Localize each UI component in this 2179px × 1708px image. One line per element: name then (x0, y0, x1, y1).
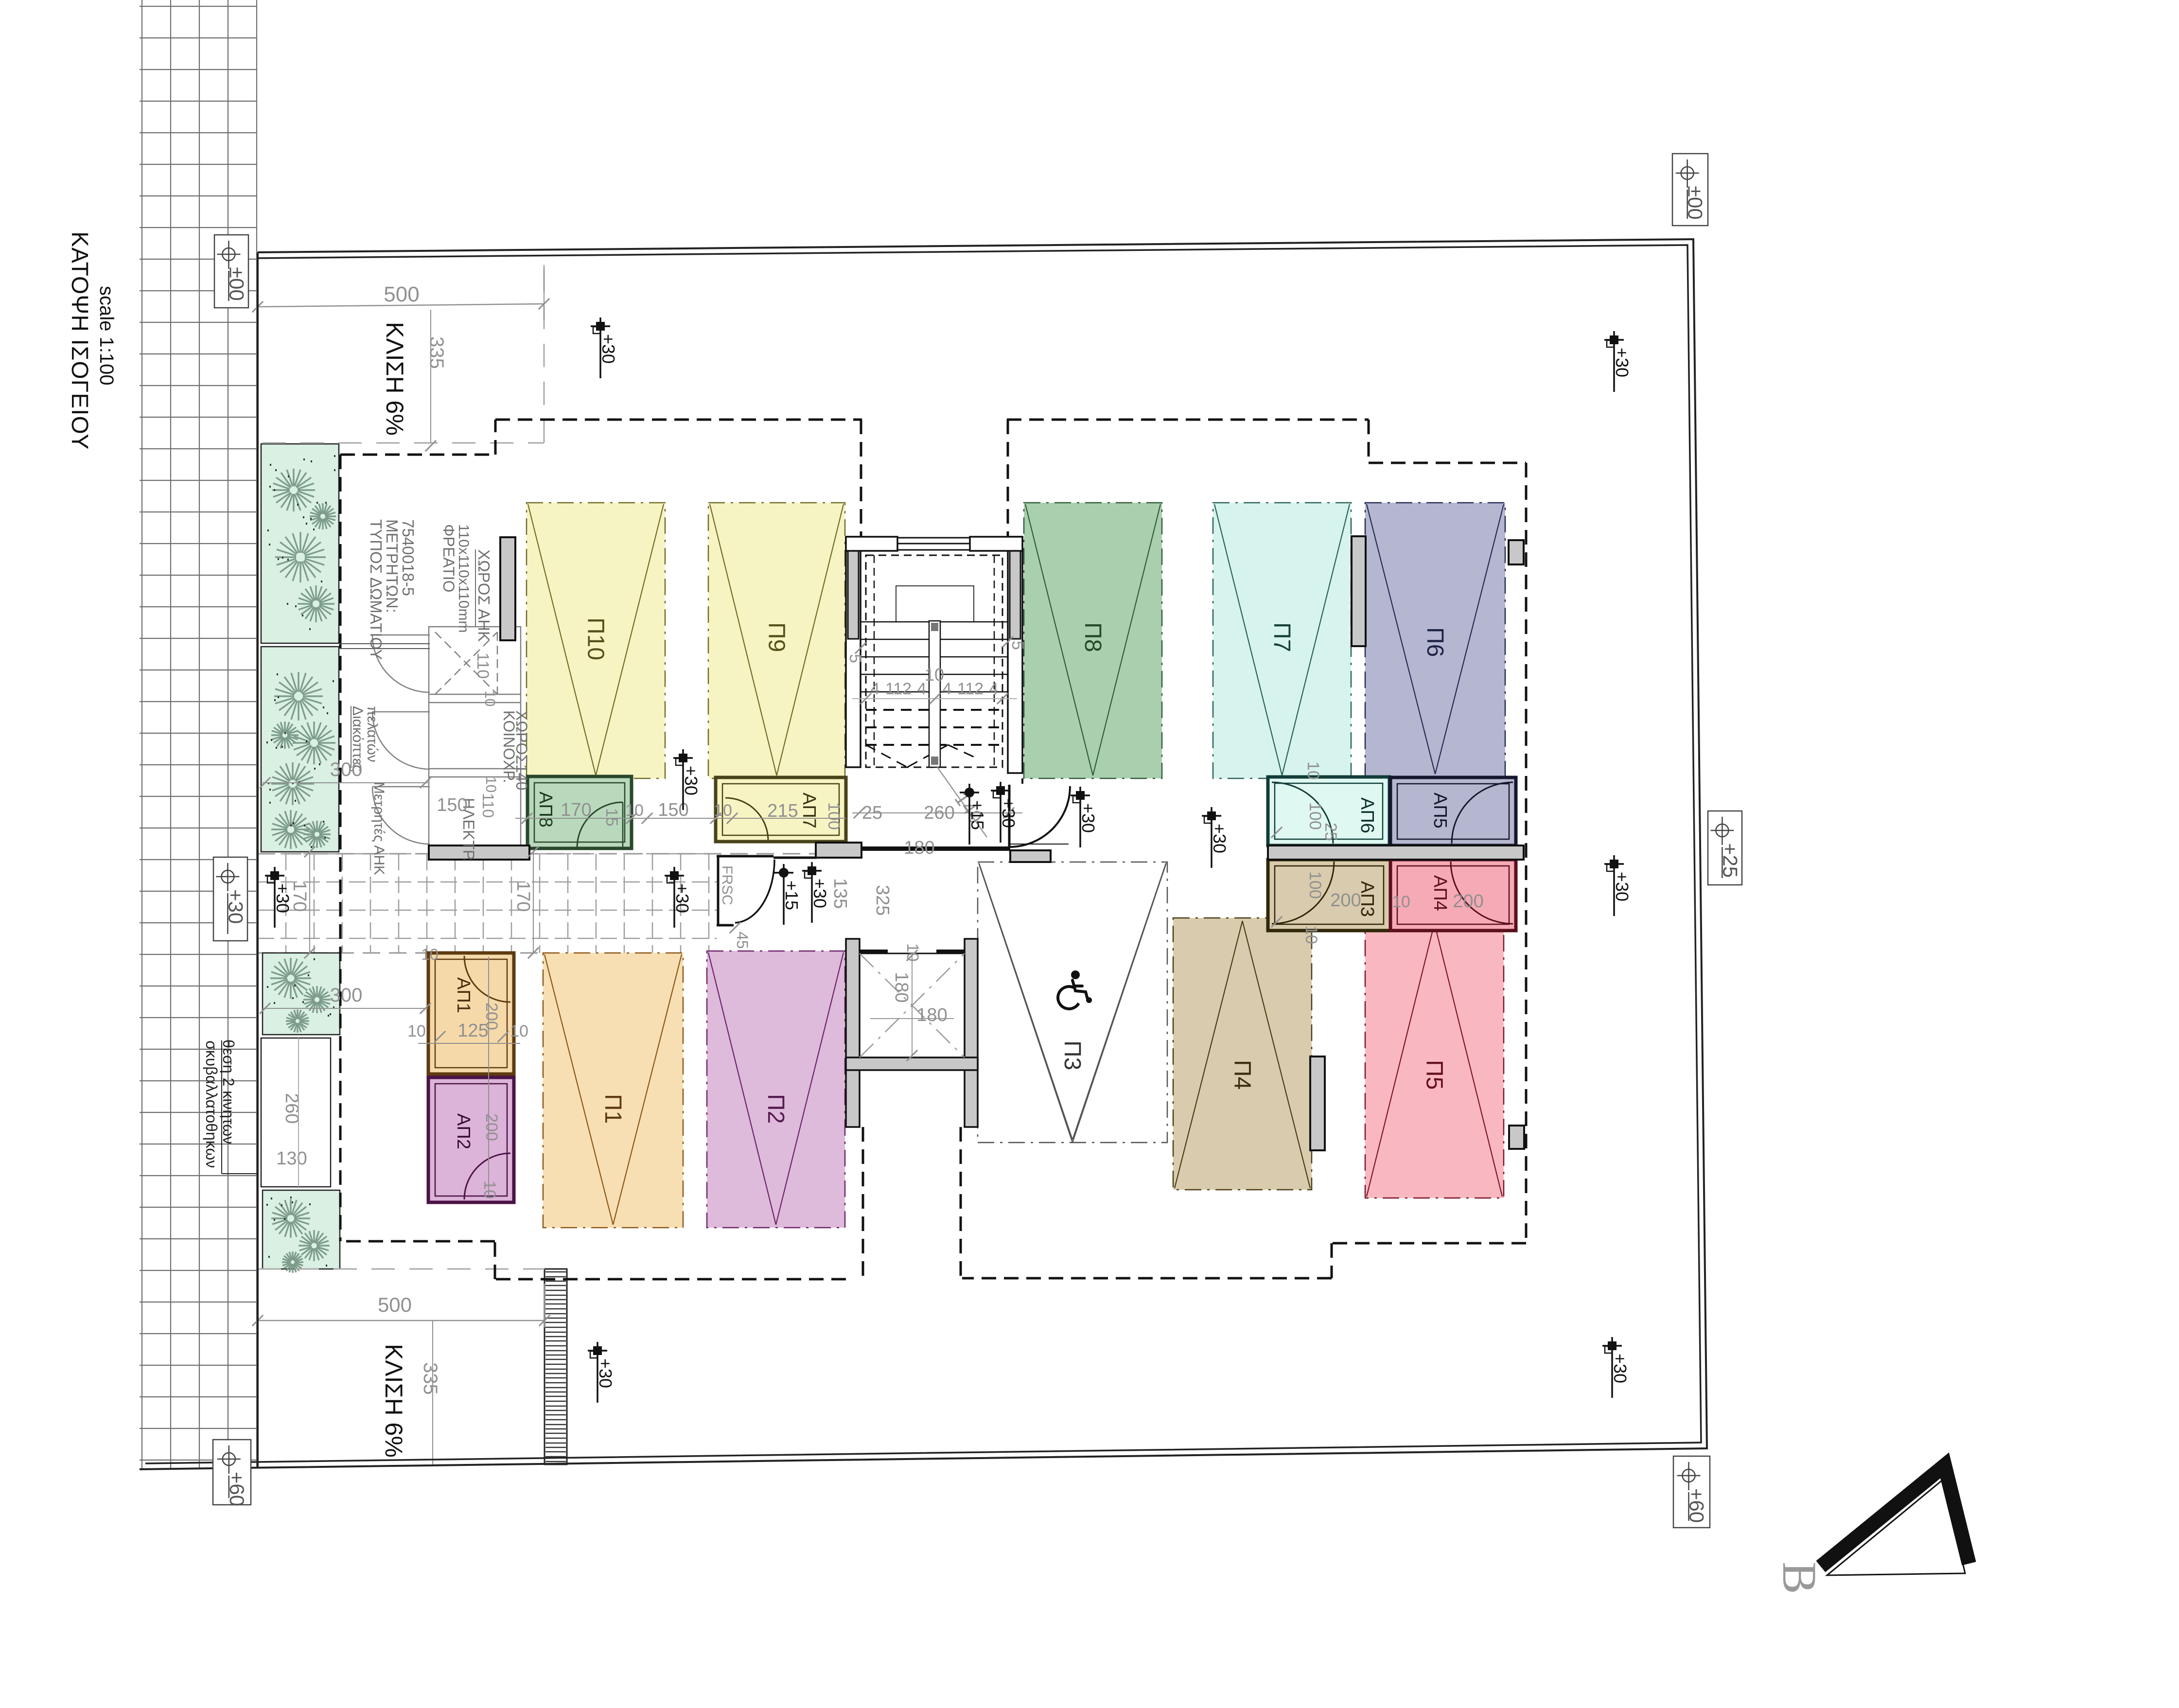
svg-text:Π4: Π4 (1230, 1060, 1255, 1090)
svg-text:+25: +25 (1719, 843, 1741, 878)
svg-text:170: 170 (513, 881, 533, 912)
svg-text:500: 500 (378, 1293, 412, 1316)
svg-text:ΑΠ2: ΑΠ2 (453, 1113, 474, 1149)
svg-text:θεση 2 κινητων: θεση 2 κινητων (220, 1039, 237, 1144)
svg-text:FRSC: FRSC (719, 865, 735, 905)
svg-text:+30: +30 (999, 798, 1019, 828)
svg-text:112: 112 (885, 680, 912, 698)
svg-text:10: 10 (625, 801, 644, 820)
svg-text:335: 335 (420, 1362, 441, 1395)
svg-text:Π6: Π6 (1422, 627, 1448, 657)
svg-text:4: 4 (917, 680, 927, 698)
svg-text:+30: +30 (1612, 348, 1632, 377)
svg-text:150: 150 (437, 795, 467, 815)
svg-text:10: 10 (482, 690, 498, 706)
svg-text:B: B (1773, 1562, 1827, 1594)
svg-text:ΑΠ7: ΑΠ7 (799, 792, 819, 828)
svg-text:10: 10 (903, 943, 922, 962)
svg-text:200: 200 (1453, 891, 1483, 912)
svg-text:ΧΩΡΟΣ ΑΗΚ: ΧΩΡΟΣ ΑΗΚ (475, 549, 493, 642)
svg-text:5: 5 (1008, 641, 1027, 650)
svg-text:+15: +15 (967, 800, 987, 830)
svg-text:ΑΠ5: ΑΠ5 (1430, 792, 1450, 828)
svg-text:25: 25 (1321, 823, 1340, 841)
svg-text:300: 300 (330, 759, 363, 780)
svg-text:+15: +15 (782, 880, 802, 910)
svg-text:10: 10 (421, 946, 439, 963)
svg-text:ΑΠ1: ΑΠ1 (453, 977, 474, 1013)
svg-text:Μετρητές ΑΗΚ: Μετρητές ΑΗΚ (371, 782, 387, 875)
svg-text:110: 110 (474, 652, 492, 679)
svg-text:180: 180 (891, 972, 912, 1003)
svg-text:ΚΛΙΣΗ 6%: ΚΛΙΣΗ 6% (380, 1344, 407, 1458)
svg-text:ΤΥΠΟΣ ΔΩΜΑΤΙΟΥ: ΤΥΠΟΣ ΔΩΜΑΤΙΟΥ (367, 519, 385, 660)
svg-text:+30: +30 (681, 766, 701, 795)
svg-text:+60: +60 (226, 1472, 248, 1506)
svg-text:10: 10 (407, 1022, 426, 1040)
svg-text:100: 100 (1306, 871, 1324, 899)
svg-text:σκυβαλλατοθηκων: σκυβαλλατοθηκων (203, 1040, 220, 1168)
svg-text:10: 10 (480, 1180, 499, 1199)
svg-text:10: 10 (1392, 893, 1410, 911)
svg-text:ΑΠ6: ΑΠ6 (1357, 797, 1377, 833)
svg-text:10: 10 (483, 776, 499, 792)
svg-text:180: 180 (904, 838, 934, 858)
svg-text:+30: +30 (1612, 872, 1632, 901)
svg-text:+60: +60 (1686, 1488, 1708, 1523)
svg-text:+30: +30 (810, 879, 830, 908)
svg-text:10: 10 (1304, 761, 1322, 780)
svg-text:ΧΩΡΟΣ: ΧΩΡΟΣ (513, 710, 530, 764)
svg-text:5: 5 (846, 654, 864, 663)
svg-text:7540018-5: 7540018-5 (399, 519, 417, 596)
svg-text:45: 45 (734, 932, 751, 949)
svg-text:Π7: Π7 (1269, 622, 1295, 652)
svg-text:±00: ±00 (1684, 186, 1707, 220)
svg-text:200: 200 (482, 1113, 501, 1141)
svg-text:+30: +30 (1078, 803, 1098, 833)
svg-text:+30: +30 (1210, 824, 1230, 853)
svg-text:10: 10 (1302, 926, 1320, 944)
svg-text:140: 140 (513, 764, 530, 790)
svg-text:150: 150 (658, 800, 688, 820)
svg-text:ΦΡΕΑΤΙΟ: ΦΡΕΑΤΙΟ (440, 524, 457, 593)
svg-text:15: 15 (602, 808, 621, 827)
svg-text:110x110x110mm: 110x110x110mm (456, 524, 472, 633)
svg-text:±00: ±00 (225, 267, 248, 301)
svg-text:Π10: Π10 (583, 617, 609, 660)
svg-text:180: 180 (916, 1005, 947, 1025)
svg-text:ΑΠ4: ΑΠ4 (1430, 875, 1450, 911)
svg-text:4: 4 (943, 680, 952, 698)
svg-text:300: 300 (330, 985, 363, 1006)
svg-text:170: 170 (561, 800, 591, 820)
svg-text:Π2: Π2 (763, 1094, 789, 1124)
svg-text:325: 325 (872, 885, 893, 916)
svg-text:+30: +30 (596, 1358, 615, 1388)
svg-text:135: 135 (830, 878, 850, 909)
svg-text:+30: +30 (672, 883, 692, 913)
svg-text:scale 1:100: scale 1:100 (96, 286, 117, 386)
svg-text:πελατών: πελατών (364, 706, 380, 762)
svg-text:ΚΛΙΣΗ 6%: ΚΛΙΣΗ 6% (381, 322, 408, 436)
svg-text:10: 10 (925, 665, 944, 685)
svg-text:ΑΠ8: ΑΠ8 (535, 792, 556, 828)
svg-text:100: 100 (825, 802, 843, 830)
svg-text:+30: +30 (273, 883, 293, 913)
svg-text:+30: +30 (1610, 1354, 1630, 1383)
svg-text:335: 335 (426, 336, 447, 369)
svg-text:110: 110 (479, 793, 497, 818)
svg-text:200: 200 (1330, 890, 1361, 911)
svg-text:ΚΑΤΟΨΗ ΙΣΟΓΕΙΟΥ: ΚΑΤΟΨΗ ΙΣΟΓΕΙΟΥ (67, 231, 92, 450)
svg-text:4: 4 (989, 680, 999, 698)
svg-text:500: 500 (384, 282, 419, 306)
svg-text:Π3: Π3 (1059, 1040, 1085, 1070)
svg-text:Π5: Π5 (1422, 1060, 1447, 1090)
svg-text:130: 130 (276, 1148, 307, 1169)
svg-text:Π9: Π9 (764, 622, 790, 652)
svg-text:112: 112 (957, 680, 984, 698)
svg-text:+30: +30 (224, 889, 247, 924)
svg-text:Π1: Π1 (600, 1094, 626, 1124)
svg-text:Π8: Π8 (1080, 622, 1106, 652)
svg-text:125: 125 (457, 1021, 488, 1041)
svg-text:4: 4 (871, 680, 880, 698)
svg-text:ΜΕΤΡΗΤΩΝ:: ΜΕΤΡΗΤΩΝ: (383, 519, 401, 613)
svg-text:10: 10 (510, 1022, 528, 1040)
svg-text:+30: +30 (598, 334, 618, 364)
